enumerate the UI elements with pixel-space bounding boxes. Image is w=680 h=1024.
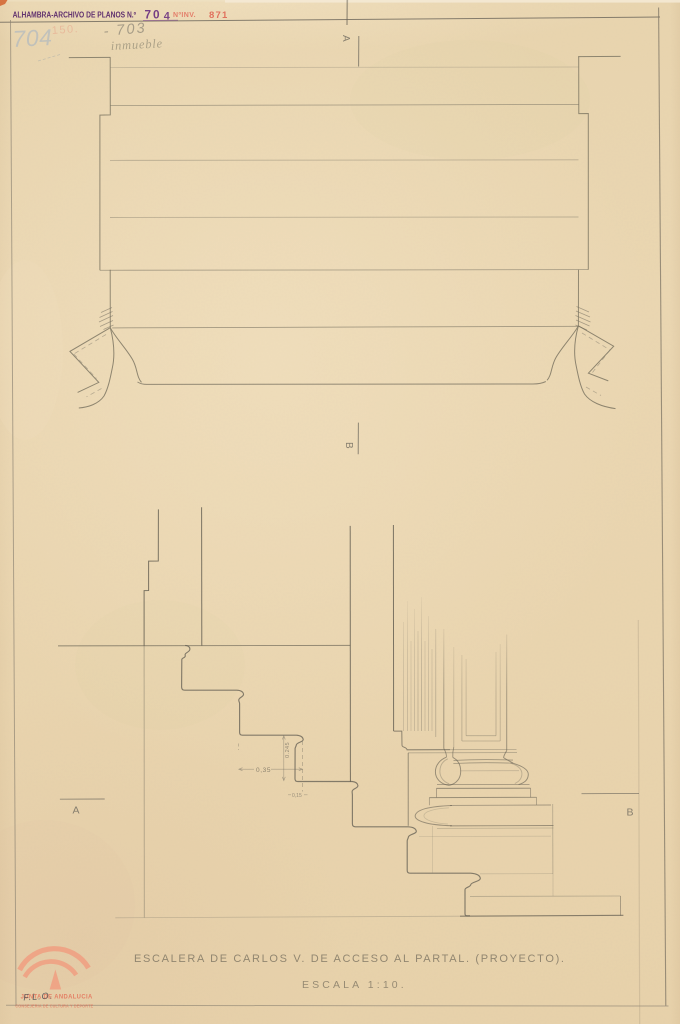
svg-text:0.245: 0.245 [285, 742, 291, 758]
svg-text:0,15: 0,15 [292, 793, 302, 799]
svg-text:ALHAMBRA-ARCHIVO DE PLANOS N.º: ALHAMBRA-ARCHIVO DE PLANOS N.º [13, 11, 137, 20]
svg-text:inmueble: inmueble [110, 36, 163, 53]
svg-text:ESCALERA DE CARLOS V. DE ACCES: ESCALERA DE CARLOS V. DE ACCESO AL PARTA… [134, 953, 566, 965]
svg-text:150.: 150. [51, 23, 79, 37]
svg-text:70: 70 [145, 8, 162, 22]
svg-text:CONSEJERIA DE CULTURA Y DEPORT: CONSEJERIA DE CULTURA Y DEPORTE [15, 1004, 93, 1009]
svg-text:A: A [73, 805, 80, 817]
svg-text:ESCALA 1:10.: ESCALA 1:10. [302, 979, 406, 991]
svg-text:704: 704 [12, 24, 53, 52]
svg-text:F.L.O.: F.L.O. [23, 990, 53, 1002]
svg-text:NºINV.: NºINV. [173, 12, 196, 19]
svg-text:0,35: 0,35 [256, 767, 271, 774]
svg-text:B: B [627, 807, 634, 819]
svg-text:A: A [340, 35, 351, 42]
svg-text:871: 871 [209, 10, 228, 21]
svg-text:B: B [343, 442, 354, 449]
